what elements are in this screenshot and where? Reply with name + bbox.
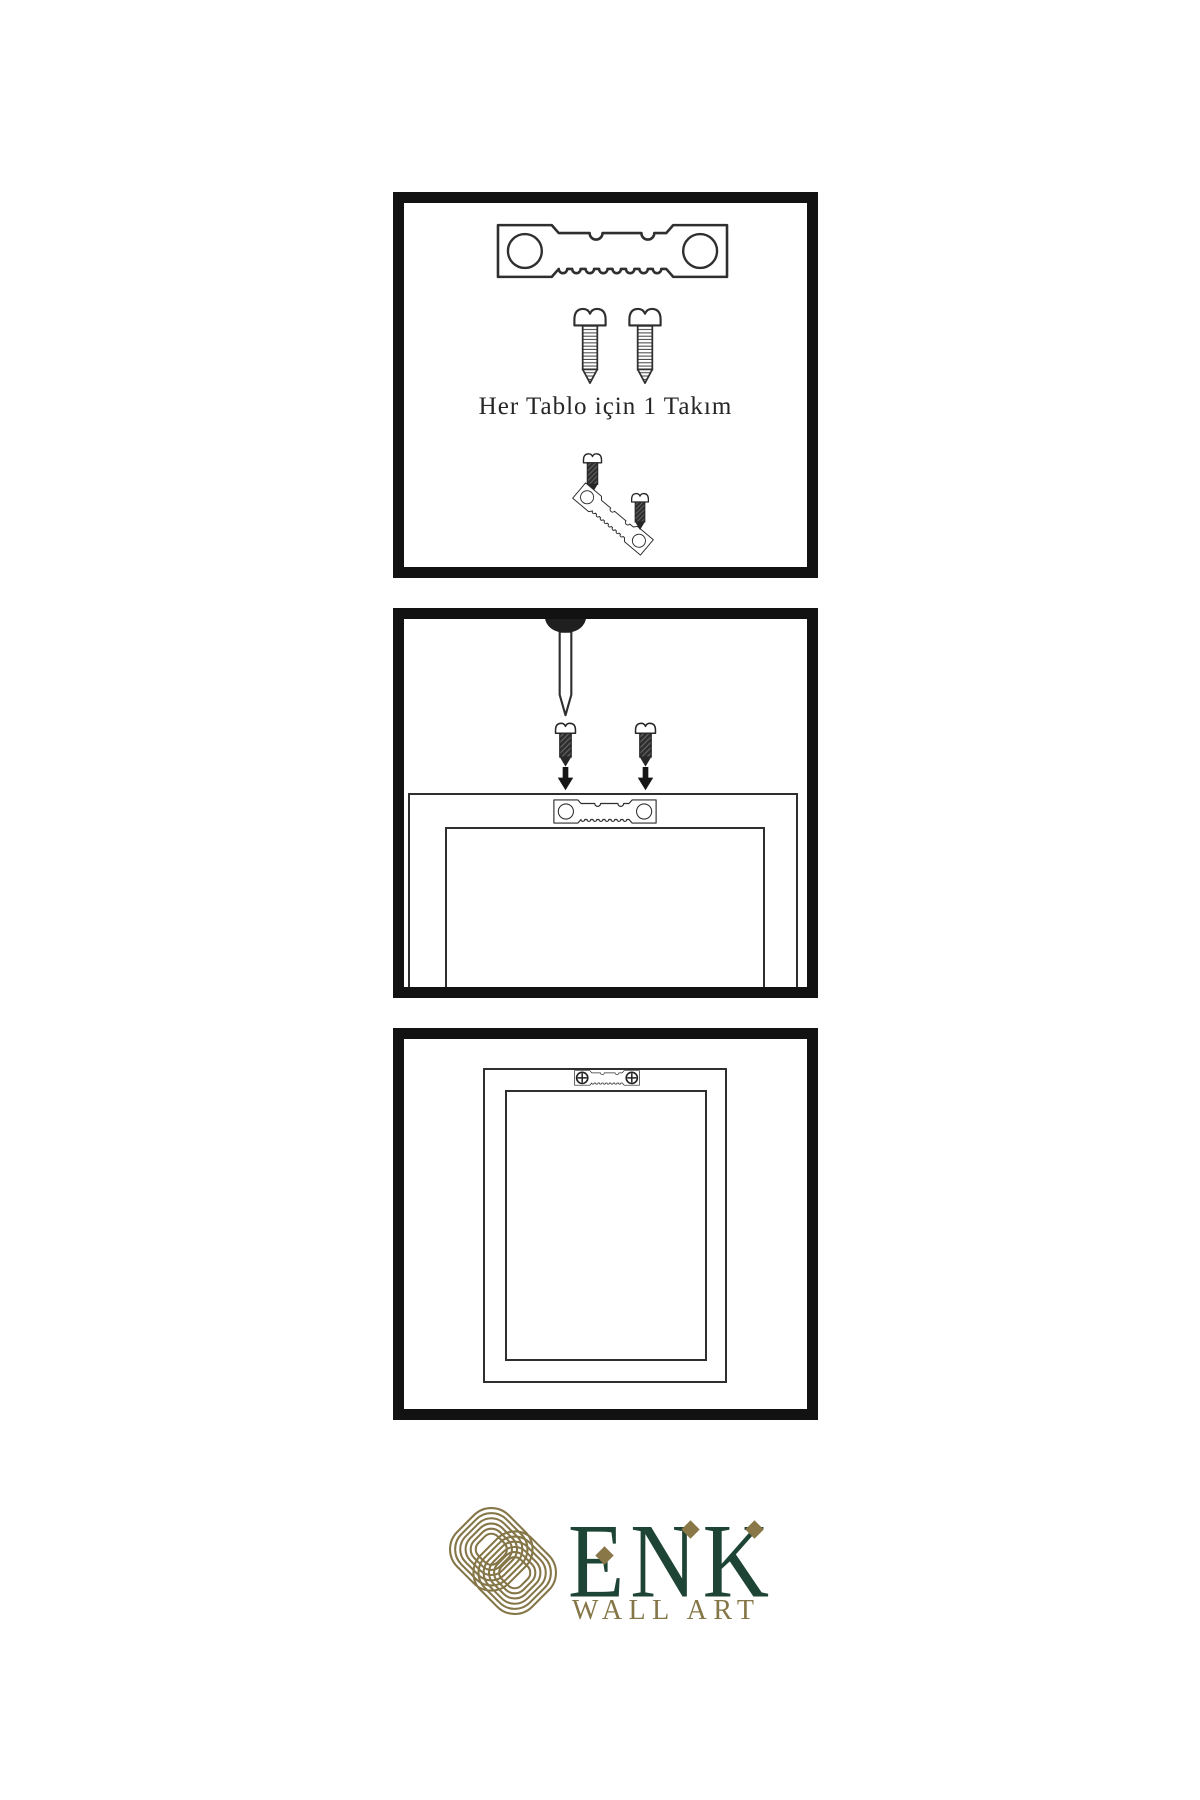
step1-caption: Her Tablo için 1 Takım [404, 393, 807, 421]
brand-subtitle: WALL ART [572, 1597, 761, 1625]
brand-logo: ENK WALL ART [430, 1490, 810, 1660]
dark-screw-icon [554, 720, 577, 768]
dark-screw-icon [630, 491, 650, 531]
threaded-screw-icon [627, 305, 663, 385]
frame-inner-outline [505, 1090, 707, 1361]
knot-logo-icon [438, 1496, 568, 1626]
step3-content [404, 1039, 807, 1409]
arrow-down-icon [635, 767, 656, 791]
step2-panel [393, 608, 818, 998]
threaded-screw-icon [572, 305, 608, 385]
dark-screw-icon [634, 720, 657, 768]
step1-panel: Her Tablo için 1 Takım [393, 192, 818, 578]
frame-inner-outline [445, 827, 765, 987]
step2-content [404, 619, 807, 987]
step3-panel [393, 1028, 818, 1420]
sawtooth-hanger-icon [496, 223, 729, 279]
mounted-sawtooth-hanger-icon [574, 1068, 640, 1088]
nail-icon [543, 619, 588, 720]
arrow-down-icon [555, 767, 576, 791]
sawtooth-hanger-icon [553, 799, 657, 824]
step1-content: Her Tablo için 1 Takım [404, 203, 807, 567]
instruction-sheet: Her Tablo için 1 Takım [0, 0, 1200, 1800]
